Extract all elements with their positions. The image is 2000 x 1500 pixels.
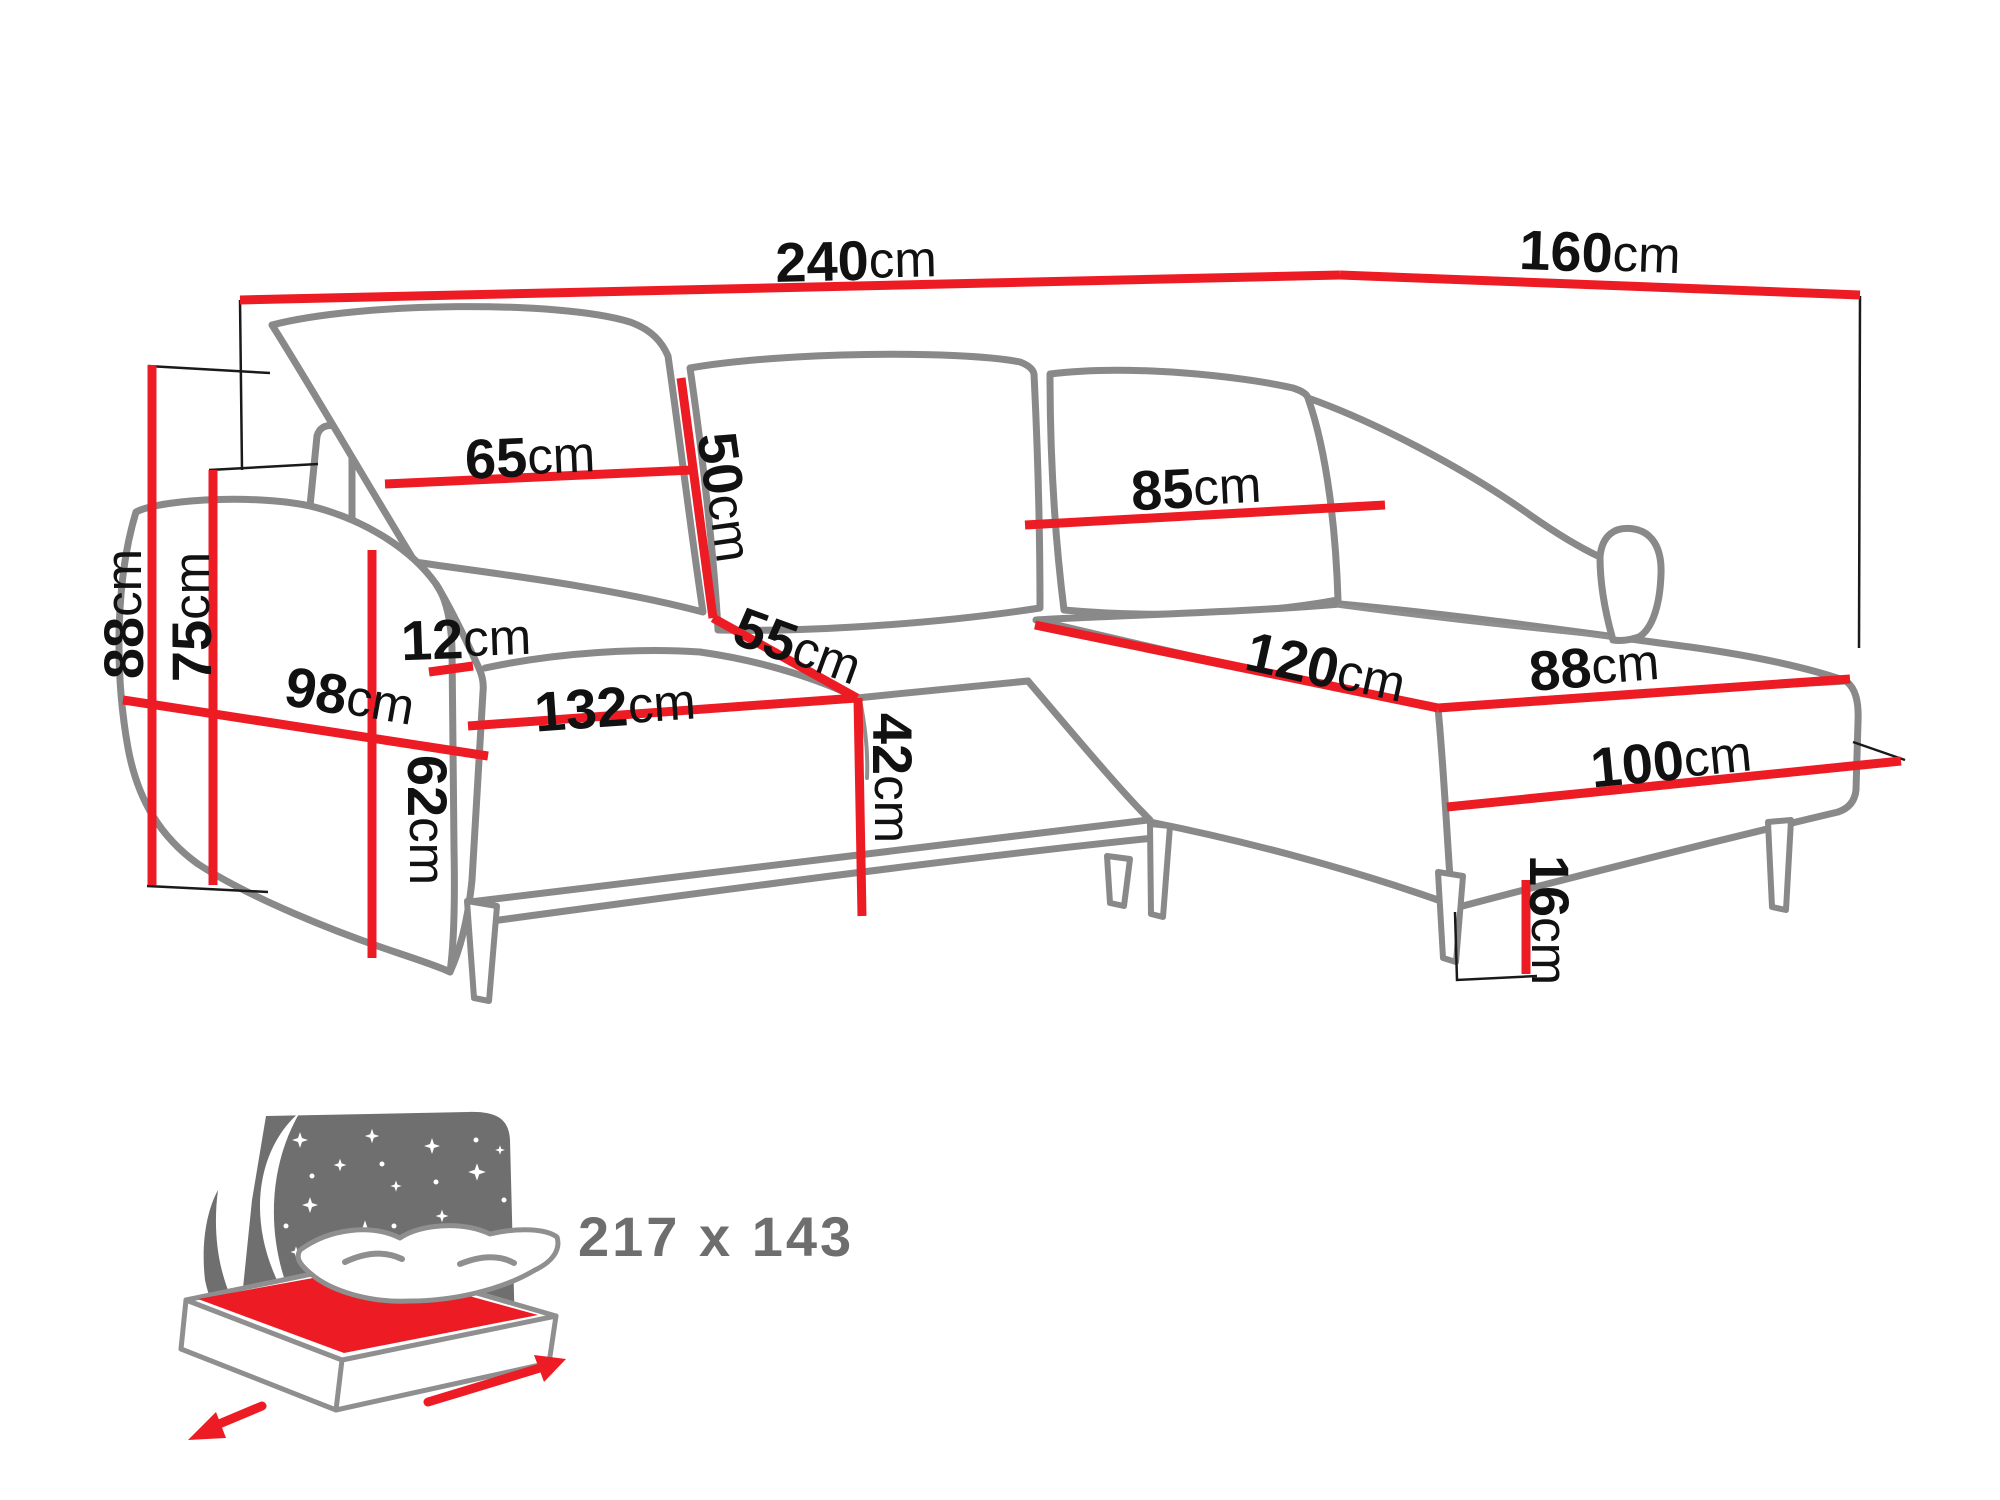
label-85cm: 85cm	[1129, 452, 1262, 522]
helper-vertical-left	[240, 300, 242, 470]
helper-backrest-top	[209, 464, 318, 470]
sofa-right-end-edge	[1028, 681, 1150, 820]
helper-height-top	[148, 366, 270, 373]
label-42cm: 42cm	[862, 713, 925, 843]
sleeping-function-icon: 217 x 143	[181, 1112, 854, 1440]
label-75cm: 75cm	[160, 552, 223, 682]
seat-deck-edge	[857, 681, 1028, 698]
label-12cm: 12cm	[400, 604, 532, 672]
leg-chaise-right	[1768, 820, 1791, 910]
leg-mid-tall	[1150, 824, 1170, 917]
label-132cm: 132cm	[532, 669, 697, 743]
label-160cm: 160cm	[1518, 217, 1682, 286]
base-rail-bottom	[477, 838, 1154, 923]
sleeping-area-size: 217 x 143	[578, 1205, 854, 1268]
label-65cm: 65cm	[464, 422, 597, 491]
sofa-dimension-diagram: 240cm 160cm 88cm 75cm 65cm 50cm 55cm 12c…	[0, 0, 2000, 1500]
helper-vertical-right	[1859, 296, 1860, 648]
leg-mid-small	[1107, 856, 1130, 906]
label-62cm: 62cm	[397, 755, 460, 885]
dim-line-42	[858, 698, 862, 916]
bed-icon	[181, 1226, 566, 1440]
label-88cm-height: 88cm	[92, 549, 155, 679]
arrow-left-head	[188, 1412, 226, 1440]
duvet	[298, 1226, 558, 1302]
diagram-canvas: 240cm 160cm 88cm 75cm 65cm 50cm 55cm 12c…	[0, 0, 2000, 1500]
label-16cm: 16cm	[1519, 855, 1582, 985]
chaise-back-frame	[1308, 398, 1600, 557]
chaise-bottom-left-edge	[1150, 822, 1455, 906]
right-armrest	[1600, 528, 1661, 640]
leg-chaise-front	[1438, 872, 1463, 962]
base-rail-top	[470, 820, 1148, 902]
label-240cm: 240cm	[775, 227, 938, 294]
leg-front-left	[467, 901, 497, 1001]
